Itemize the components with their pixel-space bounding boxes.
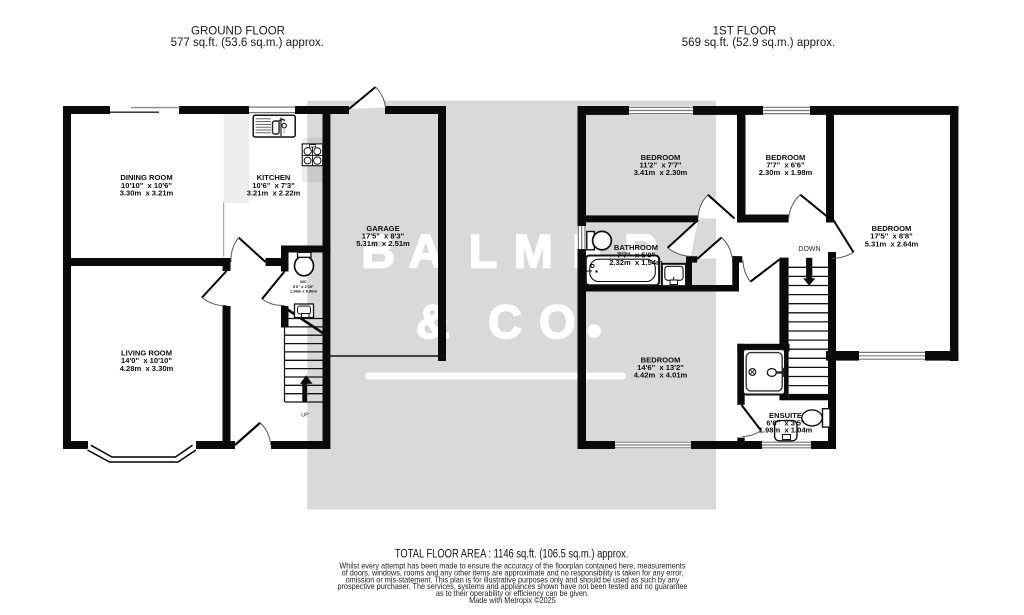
svg-text:4.28m x 3.30m: 4.28m x 3.30m (120, 364, 174, 373)
svg-text:1.98m x 0.86m: 1.98m x 0.86m (290, 288, 318, 293)
svg-text:DOWN: DOWN (798, 246, 820, 253)
svg-text:577 sq.ft. (53.6 sq.m.) approx: 577 sq.ft. (53.6 sq.m.) approx. (171, 37, 324, 49)
svg-text:Made with Metropix ©2025: Made with Metropix ©2025 (469, 596, 556, 605)
svg-text:2.32m x 1.54m: 2.32m x 1.54m (609, 258, 663, 267)
svg-text:5.31m x 2.64m: 5.31m x 2.64m (865, 239, 919, 248)
svg-text:L: L (469, 225, 498, 278)
svg-text:1ST FLOOR: 1ST FLOOR (713, 25, 777, 37)
svg-text:UP: UP (301, 413, 309, 419)
svg-text:3.41m x 2.30m: 3.41m x 2.30m (634, 168, 688, 177)
svg-text:O: O (539, 295, 576, 348)
svg-text:A: A (409, 225, 443, 278)
svg-text:M: M (514, 225, 553, 278)
svg-text:4.42m x 4.01m: 4.42m x 4.01m (634, 371, 688, 380)
svg-text:5.31m x 2.51m: 5.31m x 2.51m (356, 239, 410, 248)
svg-text:TOTAL FLOOR AREA : 1146 sq.ft.: TOTAL FLOOR AREA : 1146 sq.ft. (106.5 sq… (395, 547, 628, 560)
svg-text:C: C (488, 295, 522, 348)
svg-text:3.21m x 2.22m: 3.21m x 2.22m (247, 189, 301, 198)
svg-text:1.98m x 1.04m: 1.98m x 1.04m (759, 426, 813, 435)
svg-text:3.30m x 3.21m: 3.30m x 3.21m (120, 189, 174, 198)
svg-text:GROUND FLOOR: GROUND FLOOR (191, 25, 285, 37)
svg-text:2.30m x 1.98m: 2.30m x 1.98m (759, 168, 813, 177)
svg-text:569 sq.ft. (52.9 sq.m.) approx: 569 sq.ft. (52.9 sq.m.) approx. (682, 37, 835, 49)
